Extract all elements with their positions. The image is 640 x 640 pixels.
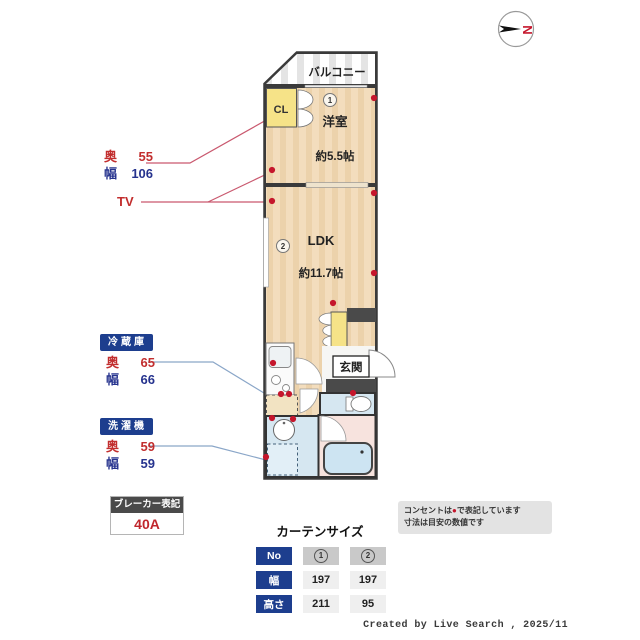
toilet-icon	[351, 397, 371, 412]
toilet-room	[320, 393, 375, 415]
tv-label: TV	[117, 195, 134, 208]
fridge-depth-value: 65	[127, 356, 155, 369]
curtain-size-table: No 1 2 幅 197 197 高さ 211 95	[256, 547, 386, 613]
curtain-header-no: No	[256, 547, 292, 565]
washer-depth-row: 奥 59	[106, 440, 155, 453]
curtain-header-width: 幅	[256, 571, 292, 589]
washroom	[266, 416, 319, 477]
bathroom	[319, 415, 376, 477]
curtain-col1-no: 1	[303, 547, 339, 565]
washer-depth-value: 59	[127, 440, 155, 453]
ldk-window	[264, 218, 269, 287]
stove-burner-icon	[283, 385, 290, 392]
balcony-window	[305, 85, 367, 87]
sliding-door	[306, 183, 368, 188]
compass-icon: N	[499, 12, 536, 47]
fridge-depth-row: 奥 65	[106, 356, 155, 369]
curtain-col2-no: 2	[350, 547, 386, 565]
cl-width-value: 106	[125, 167, 153, 180]
washing-machine-space	[268, 444, 298, 475]
curtain-col2-width: 197	[350, 571, 386, 589]
floorplan-drawing: N バルコニー CL	[0, 0, 640, 640]
cl-depth-row: 奥 55	[104, 150, 153, 163]
curtain-marker-1-number: 1	[328, 96, 333, 105]
curtain-col1-height: 211	[303, 595, 339, 613]
room1-size: 約5.5帖	[316, 149, 355, 163]
balcony-area: バルコニー	[265, 54, 376, 89]
entrance-label: 玄関	[340, 360, 363, 374]
refrigerator-space	[267, 395, 298, 417]
entrance-genkan: 玄関	[322, 346, 395, 392]
fridge-tag: 冷蔵庫	[100, 334, 153, 351]
bathtub-drain	[360, 450, 363, 453]
credit-text: Created by Live Search , 2025/11	[363, 620, 568, 631]
curtain-col1-width: 197	[303, 571, 339, 589]
curtain-size-title: カーテンサイズ	[254, 521, 386, 540]
closet-cl: CL	[267, 89, 314, 128]
closet-label: CL	[274, 104, 289, 116]
stove-burner-icon	[272, 376, 281, 385]
wall-block	[326, 379, 376, 392]
fridge-width-row: 幅 66	[106, 373, 155, 386]
curtain-header-height: 高さ	[256, 595, 292, 613]
cl-depth-value: 55	[125, 150, 153, 163]
outlet-note: コンセントは●で表記しています 寸法は目安の数値です	[398, 501, 552, 534]
fridge-width-value: 66	[127, 373, 155, 386]
note-line2: 寸法は目安の数値です	[404, 517, 546, 529]
room2-name: LDK	[308, 233, 335, 248]
breaker-title: ブレーカー表記	[111, 497, 183, 513]
entrance-door-swing	[369, 350, 395, 377]
breaker-box: ブレーカー表記 40A	[110, 496, 184, 535]
note-line1: コンセントは●で表記しています	[404, 505, 546, 517]
balcony-label: バルコニー	[308, 66, 365, 79]
floorplan-page: N バルコニー CL	[0, 0, 640, 640]
curtain-marker-2-number: 2	[281, 242, 286, 251]
washer-tag: 洗濯機	[100, 418, 153, 435]
room1-name: 洋室	[322, 114, 348, 129]
curtain-col2-height: 95	[350, 595, 386, 613]
room2-size: 約11.7帖	[299, 266, 344, 280]
width-kanji: 幅	[104, 167, 117, 180]
washer-width-row: 幅 59	[106, 457, 155, 470]
washer-width-value: 59	[127, 457, 155, 470]
depth-kanji: 奥	[104, 150, 117, 163]
bathtub-icon	[324, 443, 372, 474]
cl-width-row: 幅 106	[104, 167, 153, 180]
breaker-value: 40A	[111, 513, 183, 534]
compass-letter: N	[520, 25, 535, 34]
